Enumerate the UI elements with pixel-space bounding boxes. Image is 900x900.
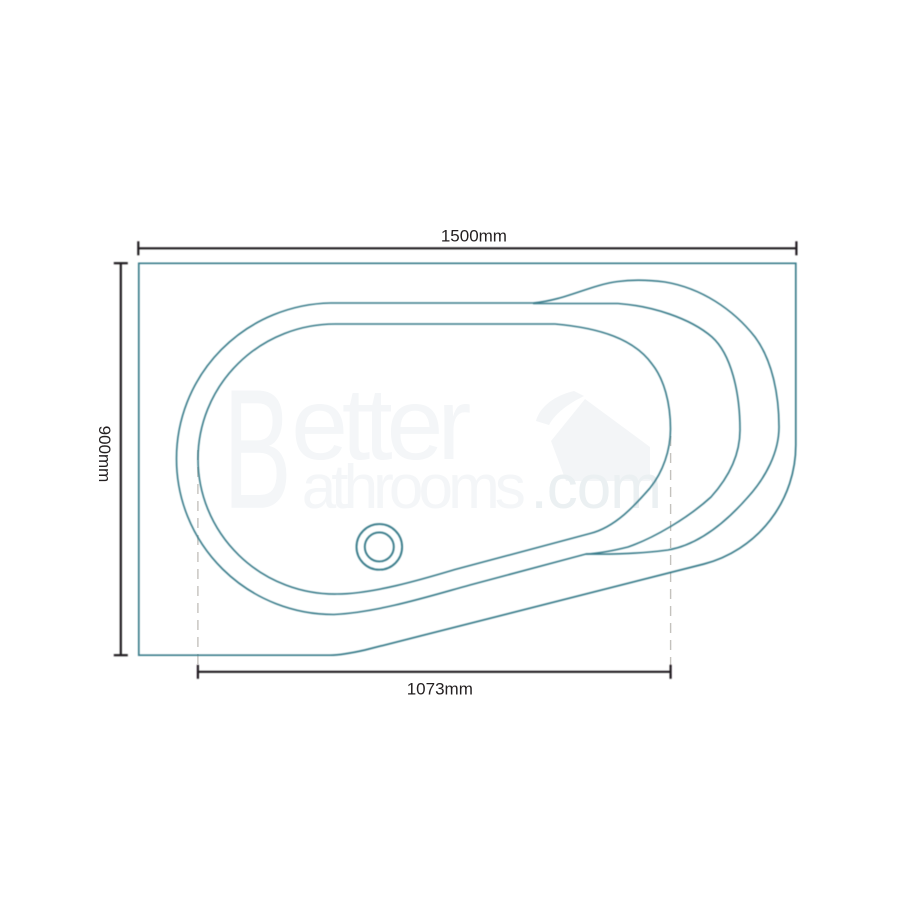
svg-text:.com: .com: [531, 453, 661, 522]
svg-text:1500mm: 1500mm: [441, 227, 507, 246]
svg-text:B: B: [223, 354, 292, 544]
svg-text:1073mm: 1073mm: [407, 679, 473, 698]
svg-text:athrooms: athrooms: [302, 453, 524, 522]
svg-text:900mm: 900mm: [95, 426, 114, 483]
